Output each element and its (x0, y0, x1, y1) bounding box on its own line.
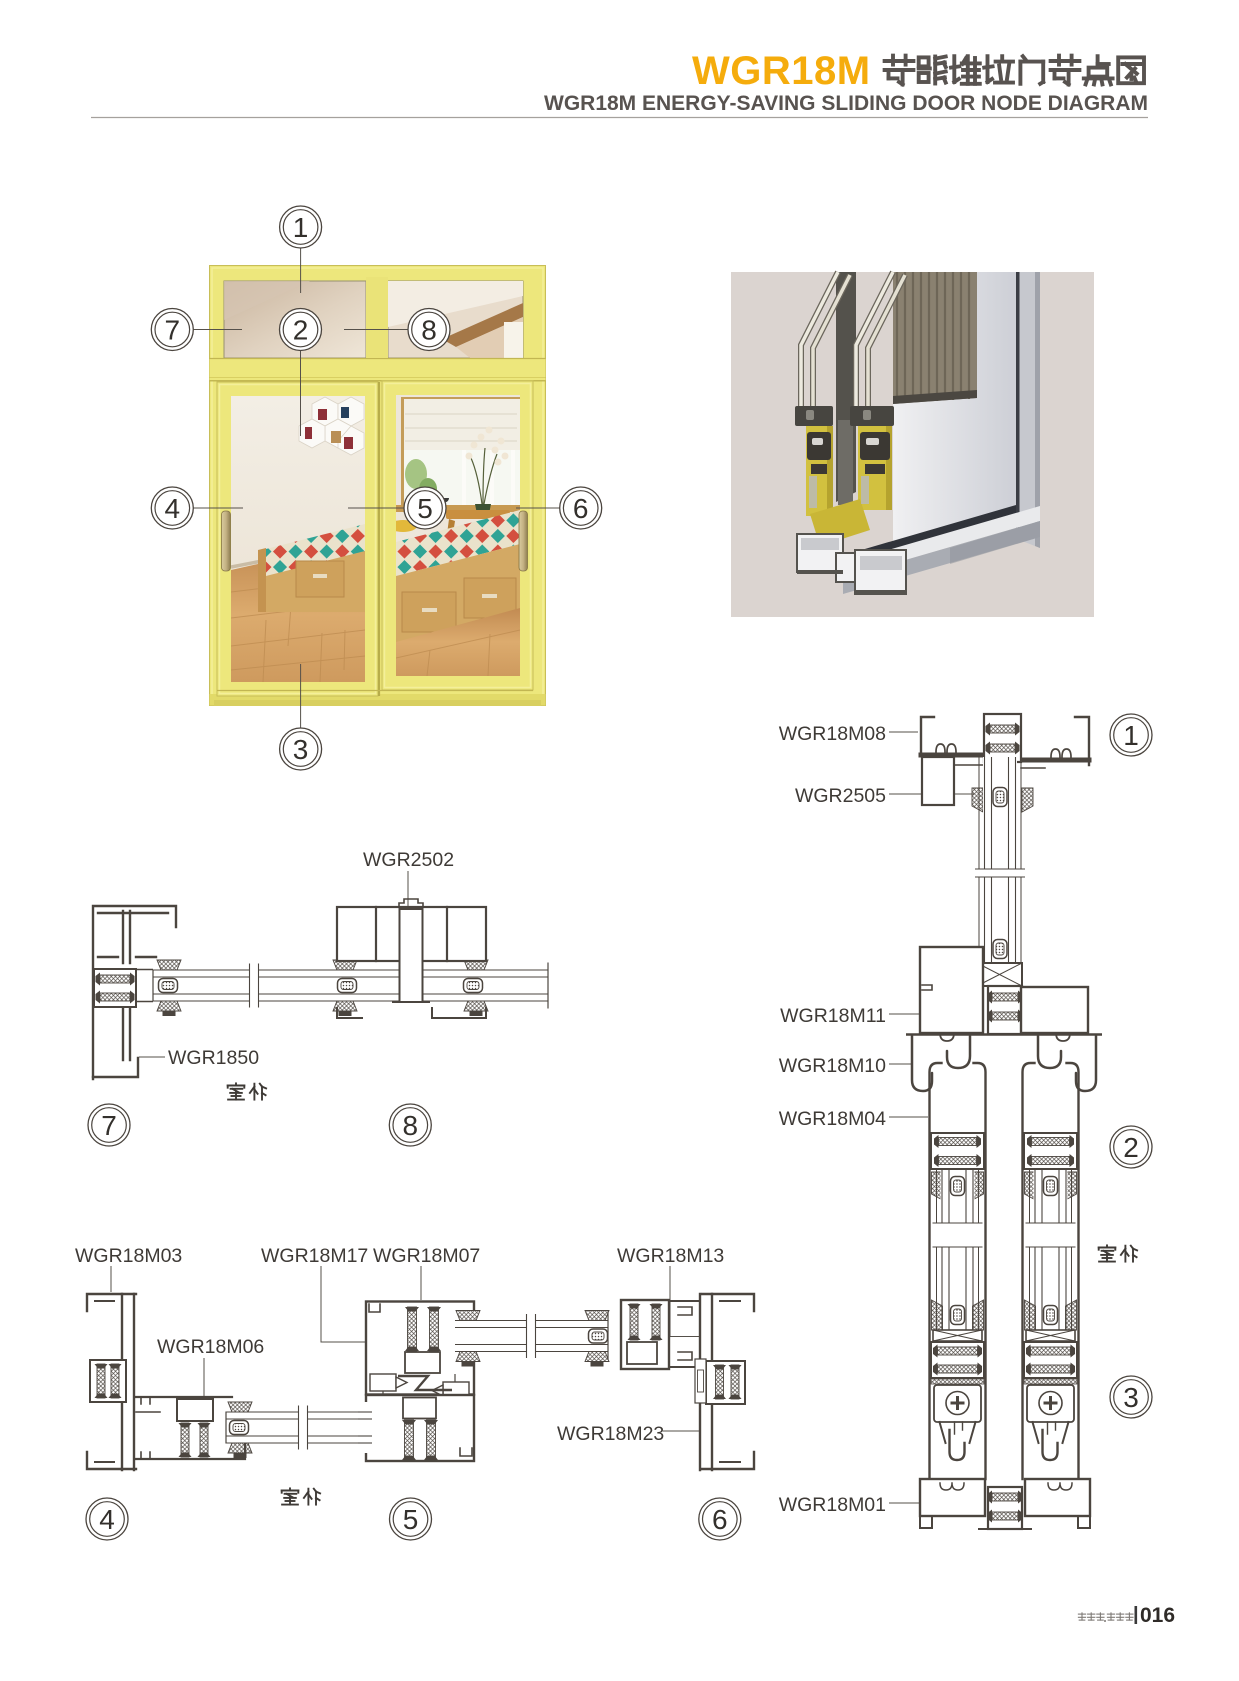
svg-text:WGR18M07: WGR18M07 (373, 1245, 480, 1267)
svg-text:WGR18M13: WGR18M13 (617, 1245, 724, 1267)
svg-text:WGR18M17: WGR18M17 (261, 1245, 368, 1267)
svg-text:WGR18M04: WGR18M04 (779, 1108, 886, 1130)
svg-text:WGR18M03: WGR18M03 (75, 1245, 182, 1267)
svg-text:6: 6 (712, 1504, 728, 1535)
svg-text:5: 5 (403, 1504, 419, 1535)
svg-text:WGR18M10: WGR18M10 (779, 1055, 886, 1077)
svg-text:6: 6 (573, 493, 589, 524)
svg-text:4: 4 (165, 493, 181, 524)
svg-text:WGR18M01: WGR18M01 (779, 1494, 886, 1516)
svg-text:WGR18M: WGR18M (692, 49, 871, 93)
svg-text:3: 3 (293, 734, 309, 765)
svg-text:1: 1 (1123, 720, 1139, 751)
svg-text:3: 3 (1123, 1382, 1139, 1413)
svg-text:7: 7 (101, 1110, 117, 1141)
svg-text:WGR18M08: WGR18M08 (779, 723, 886, 745)
svg-text:8: 8 (403, 1110, 419, 1141)
svg-text:2: 2 (293, 315, 309, 346)
svg-text:WGR18M06: WGR18M06 (157, 1336, 264, 1358)
svg-text:WGR2505: WGR2505 (795, 785, 886, 807)
svg-text:WGR18M ENERGY-SAVING SLIDING D: WGR18M ENERGY-SAVING SLIDING DOOR NODE D… (544, 92, 1148, 115)
svg-text:1: 1 (293, 212, 309, 243)
svg-text:WGR18M23: WGR18M23 (557, 1423, 664, 1445)
svg-text:4: 4 (99, 1504, 115, 1535)
svg-text:5: 5 (417, 493, 433, 524)
svg-text:WGR18M11: WGR18M11 (780, 1005, 886, 1027)
svg-text:7: 7 (165, 315, 181, 346)
svg-text:016: 016 (1140, 1604, 1175, 1627)
svg-text:8: 8 (421, 315, 437, 346)
svg-text:WGR1850: WGR1850 (168, 1047, 259, 1069)
svg-text:2: 2 (1123, 1132, 1139, 1163)
svg-text:WGR2502: WGR2502 (363, 849, 454, 871)
